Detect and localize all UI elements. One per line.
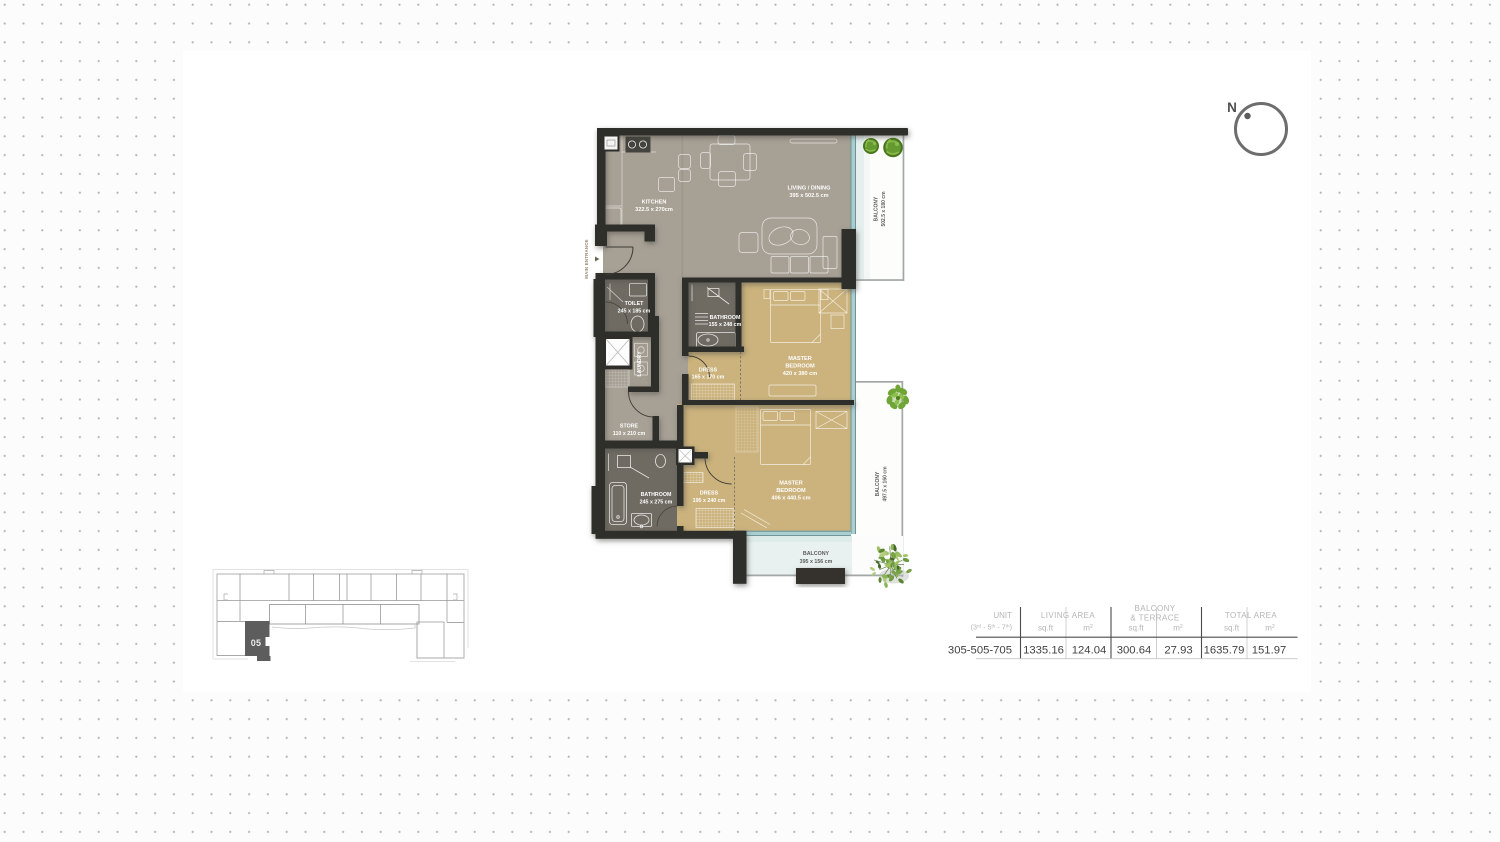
svg-text:TOILET: TOILET <box>625 301 645 307</box>
svg-text:sq.ft: sq.ft <box>1128 624 1144 633</box>
svg-text:TOTAL AREA: TOTAL AREA <box>1225 611 1278 620</box>
svg-text:BALCONY: BALCONY <box>875 471 881 496</box>
svg-text:124.04: 124.04 <box>1072 645 1107 657</box>
svg-text:245 x 275 cm: 245 x 275 cm <box>640 500 673 506</box>
svg-text:165 x 170 cm: 165 x 170 cm <box>692 375 725 381</box>
svg-text:BATHROOM: BATHROOM <box>710 315 741 321</box>
svg-text:502.5 x 180 cm: 502.5 x 180 cm <box>881 191 887 227</box>
svg-text:N: N <box>1227 100 1237 115</box>
svg-text:155 x 248 cm: 155 x 248 cm <box>709 322 742 328</box>
svg-text:LIVING AREA: LIVING AREA <box>1041 611 1095 620</box>
svg-text:245 x 185 cm: 245 x 185 cm <box>618 309 651 315</box>
svg-text:UNIT: UNIT <box>993 611 1012 620</box>
svg-text:MASTER: MASTER <box>788 356 812 362</box>
svg-text:420 x 380 cm: 420 x 380 cm <box>783 371 818 377</box>
svg-text:STORE: STORE <box>620 424 639 430</box>
svg-text:195 x 240 cm: 195 x 240 cm <box>693 498 726 504</box>
svg-text:BATHROOM: BATHROOM <box>641 492 672 498</box>
svg-text:497.5 x 160 cm: 497.5 x 160 cm <box>883 466 889 502</box>
svg-text:322.5 x 270cm: 322.5 x 270cm <box>635 207 673 213</box>
svg-text:sq.ft: sq.ft <box>1038 624 1054 633</box>
svg-text:BALCONY: BALCONY <box>1134 604 1175 613</box>
svg-text:BALCONY: BALCONY <box>803 551 830 557</box>
svg-text:LAUNDRY: LAUNDRY <box>637 351 643 377</box>
svg-text:110 x 210 cm: 110 x 210 cm <box>613 431 646 437</box>
svg-text:& TERRACE: & TERRACE <box>1130 614 1179 623</box>
svg-text:MAIN ENTRANCE: MAIN ENTRANCE <box>584 239 589 278</box>
svg-text:KITCHEN: KITCHEN <box>642 200 667 206</box>
svg-text:395 x 502.5 cm: 395 x 502.5 cm <box>789 193 828 199</box>
svg-text:MASTER: MASTER <box>779 481 803 487</box>
svg-text:LIVING / DINING: LIVING / DINING <box>788 186 831 192</box>
svg-text:BEDROOM: BEDROOM <box>785 364 815 370</box>
svg-text:DRESS: DRESS <box>699 368 718 374</box>
svg-text:1335.16: 1335.16 <box>1023 645 1064 657</box>
svg-text:395 x 156 cm: 395 x 156 cm <box>800 559 833 565</box>
svg-text:151.97: 151.97 <box>1252 645 1287 657</box>
svg-text:406 x 440.5 cm: 406 x 440.5 cm <box>771 496 810 502</box>
svg-text:300.64: 300.64 <box>1117 645 1152 657</box>
svg-text:05: 05 <box>251 638 262 648</box>
svg-text:sq.ft: sq.ft <box>1224 624 1240 633</box>
svg-text:1635.79: 1635.79 <box>1204 645 1245 657</box>
svg-text:27.93: 27.93 <box>1164 645 1192 657</box>
svg-text:BALCONY: BALCONY <box>874 196 880 221</box>
svg-text:DRESS: DRESS <box>700 491 719 497</box>
svg-text:305-505-705: 305-505-705 <box>948 645 1012 657</box>
svg-text:BEDROOM: BEDROOM <box>776 488 806 494</box>
